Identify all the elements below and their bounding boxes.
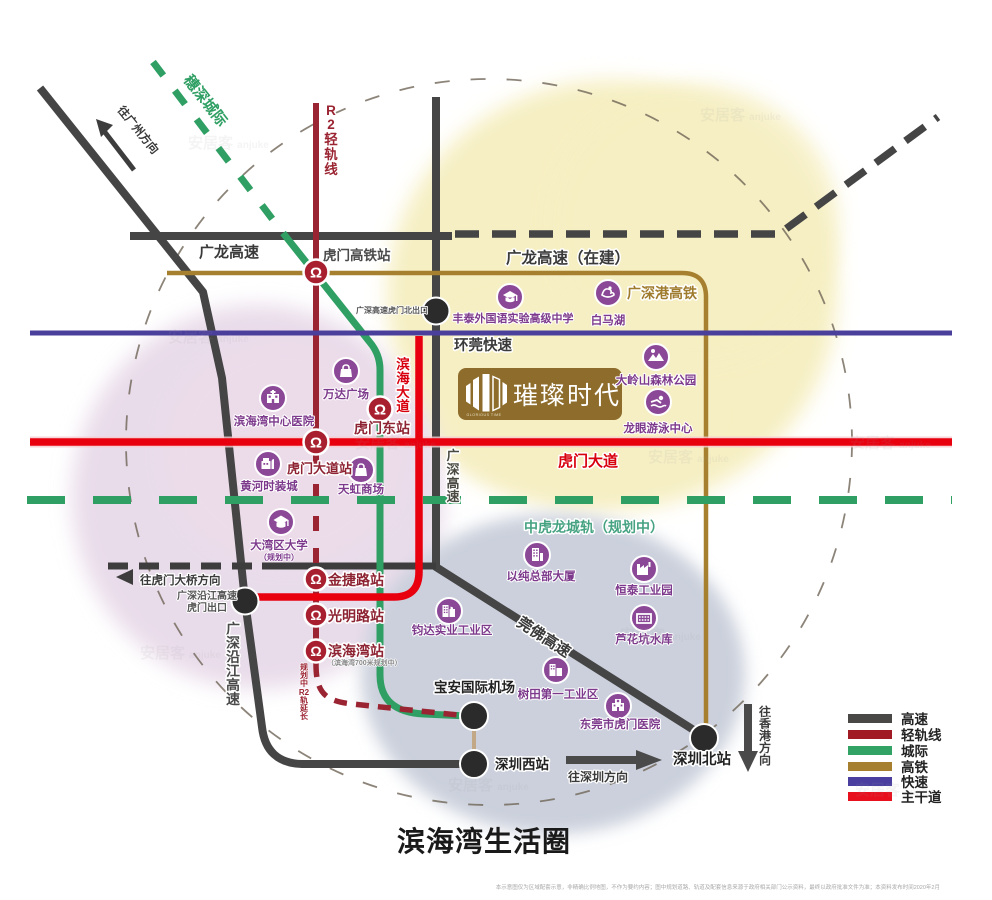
svg-text:以纯总部大厦: 以纯总部大厦 (507, 569, 576, 583)
svg-text:往香港方向: 往香港方向 (758, 704, 772, 767)
svg-text:虎门出口: 虎门出口 (187, 601, 227, 614)
svg-text:白马湖: 白马湖 (591, 313, 626, 327)
svg-text:环莞快速: 环莞快速 (454, 336, 512, 354)
svg-text:龙眼游泳中心: 龙眼游泳中心 (623, 421, 693, 435)
svg-text:丰泰外国语实验高级中学: 丰泰外国语实验高级中学 (453, 311, 574, 325)
svg-text:滨海湾中心医院: 滨海湾中心医院 (234, 414, 315, 428)
svg-text:穗深城际: 穗深城际 (180, 71, 231, 129)
svg-text:宝安国际机场: 宝安国际机场 (434, 679, 515, 695)
svg-text:滨海湾站: 滨海湾站 (328, 643, 384, 659)
svg-text:广深高速虎门北出口: 广深高速虎门北出口 (356, 305, 428, 315)
svg-text:虎门东站: 虎门东站 (354, 420, 410, 436)
svg-text:深圳西站: 深圳西站 (495, 756, 549, 772)
svg-text:天虹商场: 天虹商场 (338, 482, 384, 496)
svg-text:钧达实业工业区: 钧达实业工业区 (412, 623, 493, 637)
svg-text:滨海湾生活圈: 滨海湾生活圈 (397, 825, 571, 857)
svg-text:往广州方向: 往广州方向 (115, 103, 162, 156)
svg-text:R2轻轨线: R2轻轨线 (324, 103, 338, 177)
svg-text:Ω: Ω (310, 435, 322, 452)
svg-text:广龙高速: 广龙高速 (199, 243, 259, 261)
svg-text:Ω: Ω (310, 265, 322, 282)
svg-text:往虎门大桥方向: 往虎门大桥方向 (140, 573, 221, 587)
svg-text:广深港高铁: 广深港高铁 (627, 285, 697, 301)
svg-text:安居客 anjuke: 安居客 anjuke (188, 134, 269, 152)
svg-text:Ω: Ω (310, 571, 321, 587)
svg-text:（滨海湾700米规划中）: （滨海湾700米规划中） (327, 658, 402, 667)
svg-text:广深沿江高速: 广深沿江高速 (226, 621, 240, 707)
svg-text:Ω: Ω (374, 402, 386, 419)
svg-text:轻轨线: 轻轨线 (901, 727, 942, 743)
svg-text:万达广场: 万达广场 (322, 387, 369, 401)
svg-text:（规划中）: （规划中） (259, 552, 299, 562)
svg-text:大岭山森林公园: 大岭山森林公园 (616, 373, 697, 387)
svg-text:深圳北站: 深圳北站 (673, 750, 731, 768)
svg-text:金捷路站: 金捷路站 (327, 572, 384, 588)
svg-text:虎门大道: 虎门大道 (558, 452, 618, 470)
svg-text:光明路站: 光明路站 (327, 608, 384, 624)
svg-text:广龙高速（在建）: 广龙高速（在建） (506, 248, 630, 267)
svg-text:虎门大道站: 虎门大道站 (287, 461, 352, 476)
svg-text:往深圳方向: 往深圳方向 (568, 769, 628, 784)
svg-text:大湾区大学: 大湾区大学 (250, 538, 308, 552)
svg-text:滨海大道: 滨海大道 (396, 356, 410, 414)
svg-text:中虎龙城轨（规划中）: 中虎龙城轨（规划中） (524, 519, 664, 535)
svg-text:恒泰工业园: 恒泰工业园 (615, 583, 673, 597)
svg-text:黄河时装城: 黄河时装城 (240, 479, 298, 493)
svg-text:东莞市虎门医院: 东莞市虎门医院 (580, 717, 661, 731)
svg-text:城际: 城际 (901, 743, 929, 759)
svg-text:广深沿江高速: 广深沿江高速 (177, 589, 237, 602)
svg-text:本示意图仅为区域配套示意，非精确比例地图，不作为要约内容；图: 本示意图仅为区域配套示意，非精确比例地图，不作为要约内容；图中规划道路、轨道及配… (496, 883, 940, 891)
svg-text:高铁: 高铁 (901, 759, 929, 775)
svg-text:虎门高铁站: 虎门高铁站 (323, 247, 391, 263)
svg-text:GLORIOUS TIME: GLORIOUS TIME (467, 413, 502, 417)
svg-text:Ω: Ω (310, 643, 321, 659)
svg-text:广深高速: 广深高速 (446, 448, 459, 504)
svg-text:树田第一工业区: 树田第一工业区 (518, 687, 599, 701)
svg-text:璀璨时代: 璀璨时代 (513, 382, 621, 410)
svg-text:Ω: Ω (310, 607, 321, 623)
svg-text:高速: 高速 (901, 711, 929, 727)
